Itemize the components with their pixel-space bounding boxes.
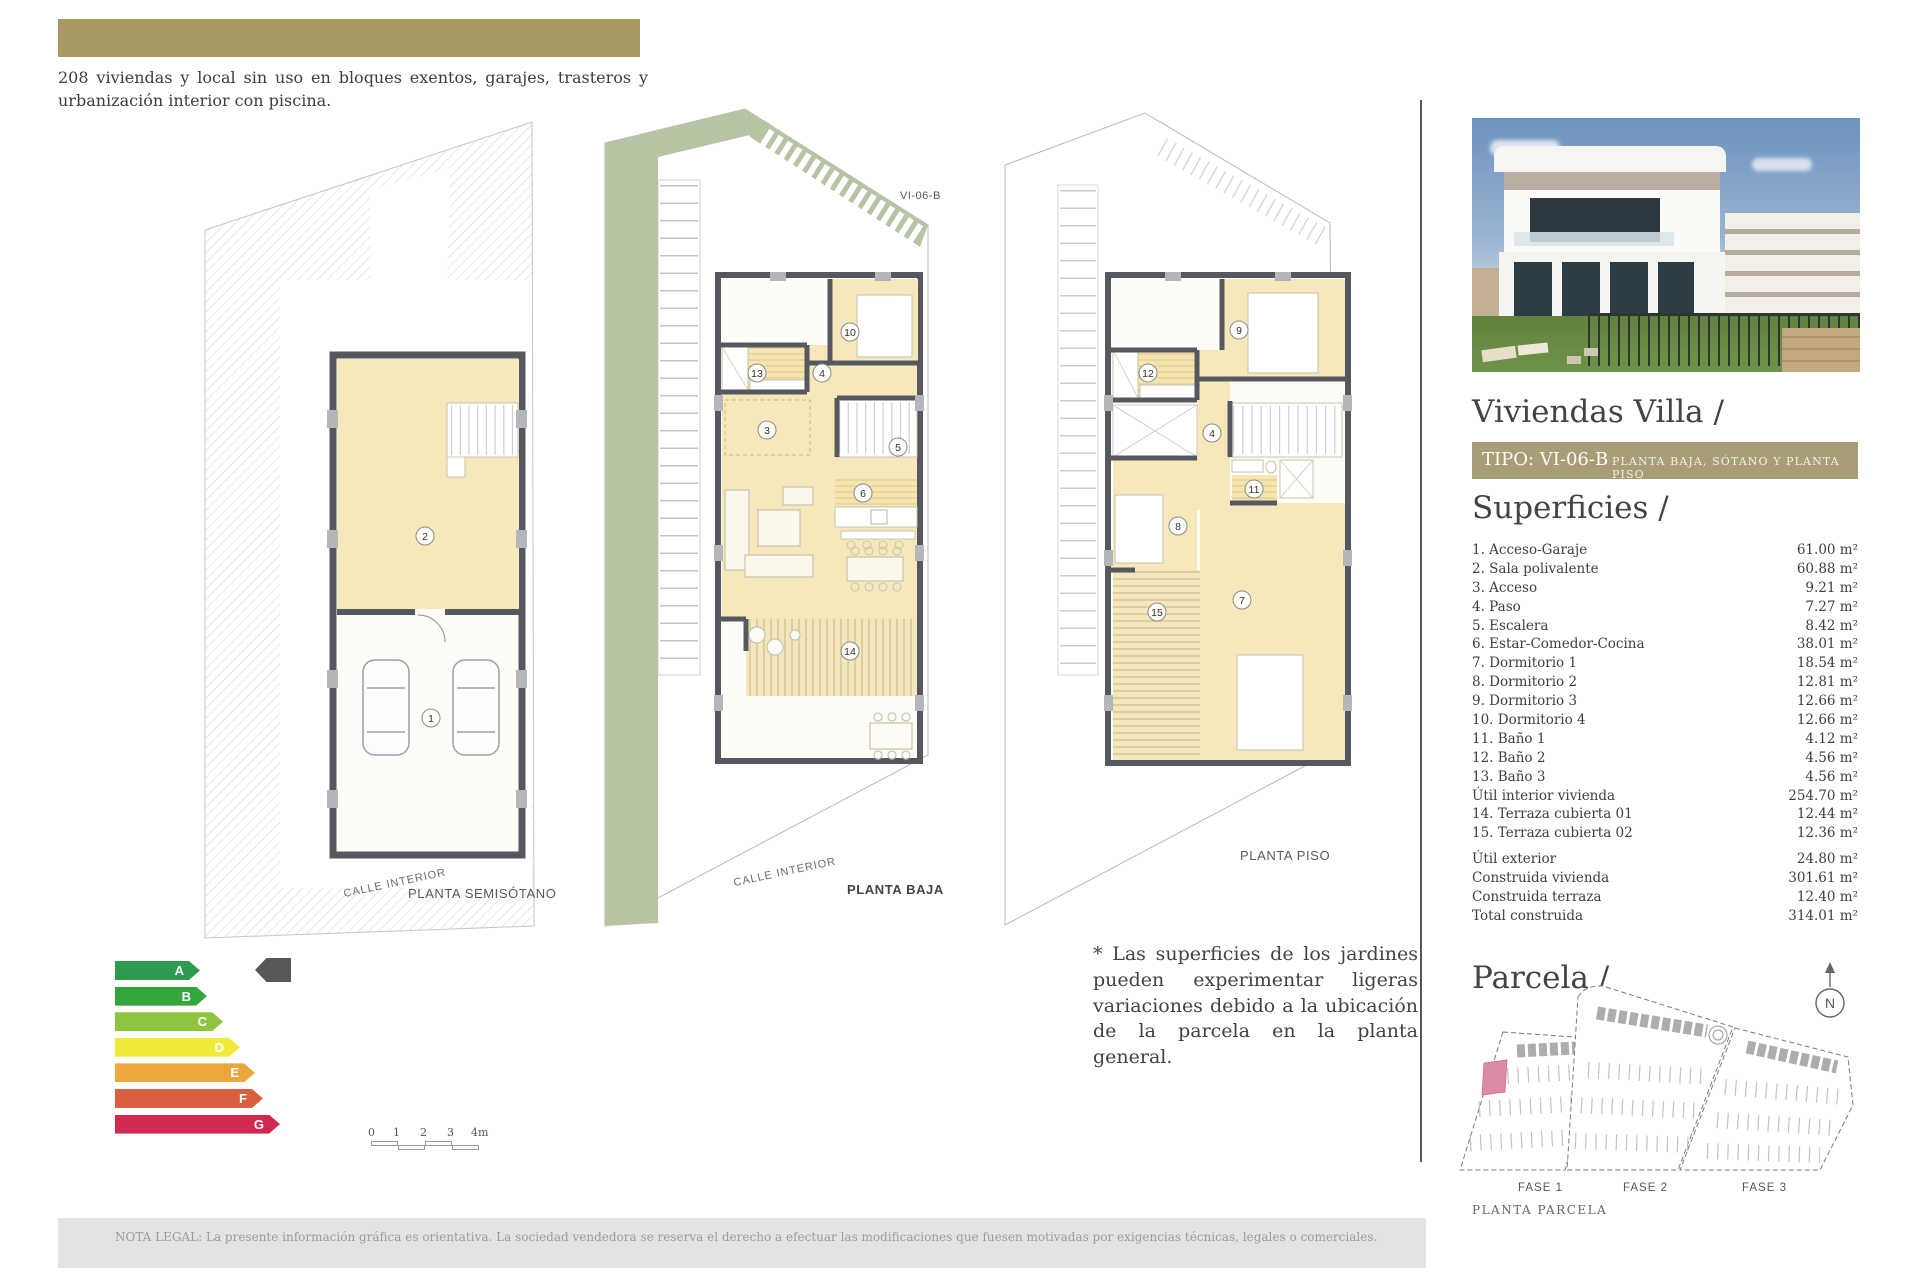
svg-text:12: 12 <box>1142 368 1154 380</box>
highlighted-parcel <box>1482 1060 1507 1095</box>
plan-label-baja: PLANTA BAJA <box>847 882 944 897</box>
table-row: 6. Estar-Comedor-Cocina38.01 m² <box>1472 635 1858 654</box>
energy-bar-f: F <box>115 1089 263 1108</box>
legal-text: NOTA LEGAL: La presente información gráf… <box>58 1218 1426 1244</box>
panel-title: Viviendas Villa / <box>1472 394 1860 430</box>
scale-bar: 0 1 2 3 4m <box>368 1126 498 1152</box>
svg-text:8: 8 <box>1175 521 1181 533</box>
table-row: 12. Baño 24.56 m² <box>1472 749 1858 768</box>
room-2-sala <box>337 359 519 609</box>
table-row: 7. Dormitorio 118.54 m² <box>1472 654 1858 673</box>
sinks <box>1140 385 1197 398</box>
table-row: Construida vivienda301.61 m² <box>1472 869 1858 888</box>
building-render-photo <box>1472 118 1860 372</box>
table-row: 4. Paso7.27 m² <box>1472 598 1858 617</box>
floorplan-semisotano: 2 1 <box>160 110 560 950</box>
tipo-bar: TIPO: VI-06-B PLANTA BAJA, SÓTANO Y PLAN… <box>1472 442 1858 479</box>
vertical-divider <box>1420 100 1422 1162</box>
table-row: 2. Sala polivalente60.88 m² <box>1472 560 1858 579</box>
fase3-label: FASE 3 <box>1742 1182 1787 1194</box>
svg-text:6: 6 <box>860 488 866 500</box>
svg-text:N: N <box>1825 995 1835 1011</box>
svg-text:4: 4 <box>819 368 825 380</box>
table-row: 1. Acceso-Garaje61.00 m² <box>1472 541 1858 560</box>
legal-bar: NOTA LEGAL: La presente información gráf… <box>58 1218 1426 1268</box>
table-row: 5. Escalera8.42 m² <box>1472 617 1858 636</box>
svg-text:1: 1 <box>428 713 434 725</box>
parcela-caption: PLANTA PARCELA <box>1472 1203 1607 1217</box>
bed <box>1248 293 1318 373</box>
room-15-terraza <box>1113 570 1200 760</box>
energy-rating-label: A B C D E F G <box>115 961 425 1151</box>
north-arrow-icon: N <box>1816 962 1844 1017</box>
svg-text:9: 9 <box>1236 325 1242 337</box>
table-row: 14. Terraza cubierta 0112.44 m² <box>1472 805 1858 824</box>
stone-wall <box>1782 328 1860 372</box>
energy-bar-d: D <box>115 1038 240 1057</box>
plan-label-piso: PLANTA PISO <box>1240 848 1330 863</box>
room-6-cocina <box>835 478 917 507</box>
table-row: 11. Baño 14.12 m² <box>1472 730 1858 749</box>
superficies-totals: Útil exterior24.80 m² Construida viviend… <box>1472 850 1858 926</box>
fase1-label: FASE 1 <box>1518 1182 1563 1194</box>
svg-text:13: 13 <box>751 368 763 380</box>
table-row: Construida terraza12.40 m² <box>1472 888 1858 907</box>
plan-label-semisotano: PLANTA SEMISÓTANO <box>408 886 556 901</box>
svg-text:10: 10 <box>844 327 856 339</box>
table-row: 9. Dormitorio 312.66 m² <box>1472 692 1858 711</box>
tipo-sublabel: PLANTA BAJA, SÓTANO Y PLANTA PISO <box>1612 455 1858 481</box>
energy-bar-a: A <box>115 961 200 980</box>
header-accent-bar <box>58 19 640 57</box>
energy-bar-c: C <box>115 1012 223 1031</box>
floorplan-piso: 9 12 4 11 8 7 15 <box>990 95 1370 935</box>
table-row: Total construida314.01 m² <box>1472 907 1858 926</box>
table-row: 13. Baño 34.56 m² <box>1472 768 1858 787</box>
svg-text:11: 11 <box>1249 484 1260 496</box>
superficies-table: 1. Acceso-Garaje61.00 m² 2. Sala polival… <box>1472 541 1858 926</box>
table-row: 3. Acceso9.21 m² <box>1472 579 1858 598</box>
energy-bar-e: E <box>115 1063 255 1082</box>
table-row: Útil exterior24.80 m² <box>1472 850 1858 869</box>
bed <box>1237 655 1303 750</box>
svg-text:15: 15 <box>1151 607 1163 619</box>
table-row: 15. Terraza cubierta 0212.36 m² <box>1472 824 1858 843</box>
table-row: Útil interior vivienda254.70 m² <box>1472 787 1858 806</box>
superficies-title: Superficies / <box>1472 490 1860 526</box>
plan-code: VI-06-B <box>900 190 941 202</box>
floorplan-baja: 13 4 3 10 5 6 14 VI-06-B <box>595 95 975 935</box>
cloud <box>1752 158 1812 171</box>
bed <box>1115 495 1163 563</box>
toilet <box>1266 461 1276 473</box>
intro-text: 208 viviendas y local sin uso en bloques… <box>58 66 648 112</box>
svg-text:4: 4 <box>1209 428 1215 440</box>
table-row: 8. Dormitorio 212.81 m² <box>1472 673 1858 692</box>
tipo-label: TIPO: VI-06-B <box>1482 449 1608 470</box>
svg-text:5: 5 <box>895 442 901 454</box>
brochure-page: 208 viviendas y local sin uso en bloques… <box>0 0 1920 1280</box>
svg-text:3: 3 <box>764 425 770 437</box>
fase2-label: FASE 2 <box>1623 1182 1668 1194</box>
energy-bar-g: G <box>115 1115 280 1134</box>
gardens-note: * Las superficies de los jardines pueden… <box>1093 942 1418 1071</box>
energy-pointer-icon <box>255 958 291 982</box>
table-row: 10. Dormitorio 412.66 m² <box>1472 711 1858 730</box>
bed <box>857 295 912 357</box>
svg-text:2: 2 <box>422 531 428 543</box>
energy-bar-b: B <box>115 987 207 1006</box>
svg-text:14: 14 <box>844 646 856 658</box>
room-14-terraza <box>746 619 917 696</box>
sinks <box>1232 460 1263 472</box>
dining-table <box>847 557 903 581</box>
svg-text:7: 7 <box>1239 595 1245 607</box>
parcela-site-plan: N FASE 1 FASE 2 FASE 3 <box>1455 955 1865 1225</box>
